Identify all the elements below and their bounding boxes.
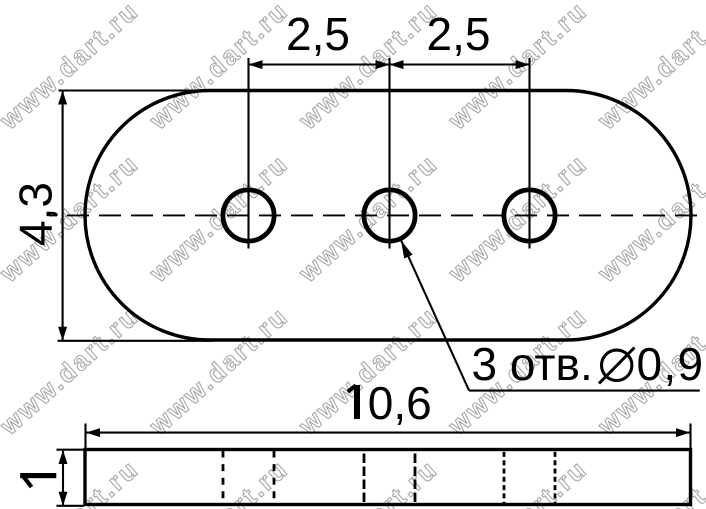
svg-text:4,3: 4,3 bbox=[9, 182, 61, 246]
svg-text:2,5: 2,5 bbox=[286, 8, 350, 60]
svg-text:3 отв.: 3 отв. bbox=[472, 338, 593, 390]
svg-text:2,5: 2,5 bbox=[427, 8, 491, 60]
svg-text:0,6: 0,6 bbox=[368, 377, 432, 429]
svg-text:0,9: 0,9 bbox=[637, 338, 705, 390]
